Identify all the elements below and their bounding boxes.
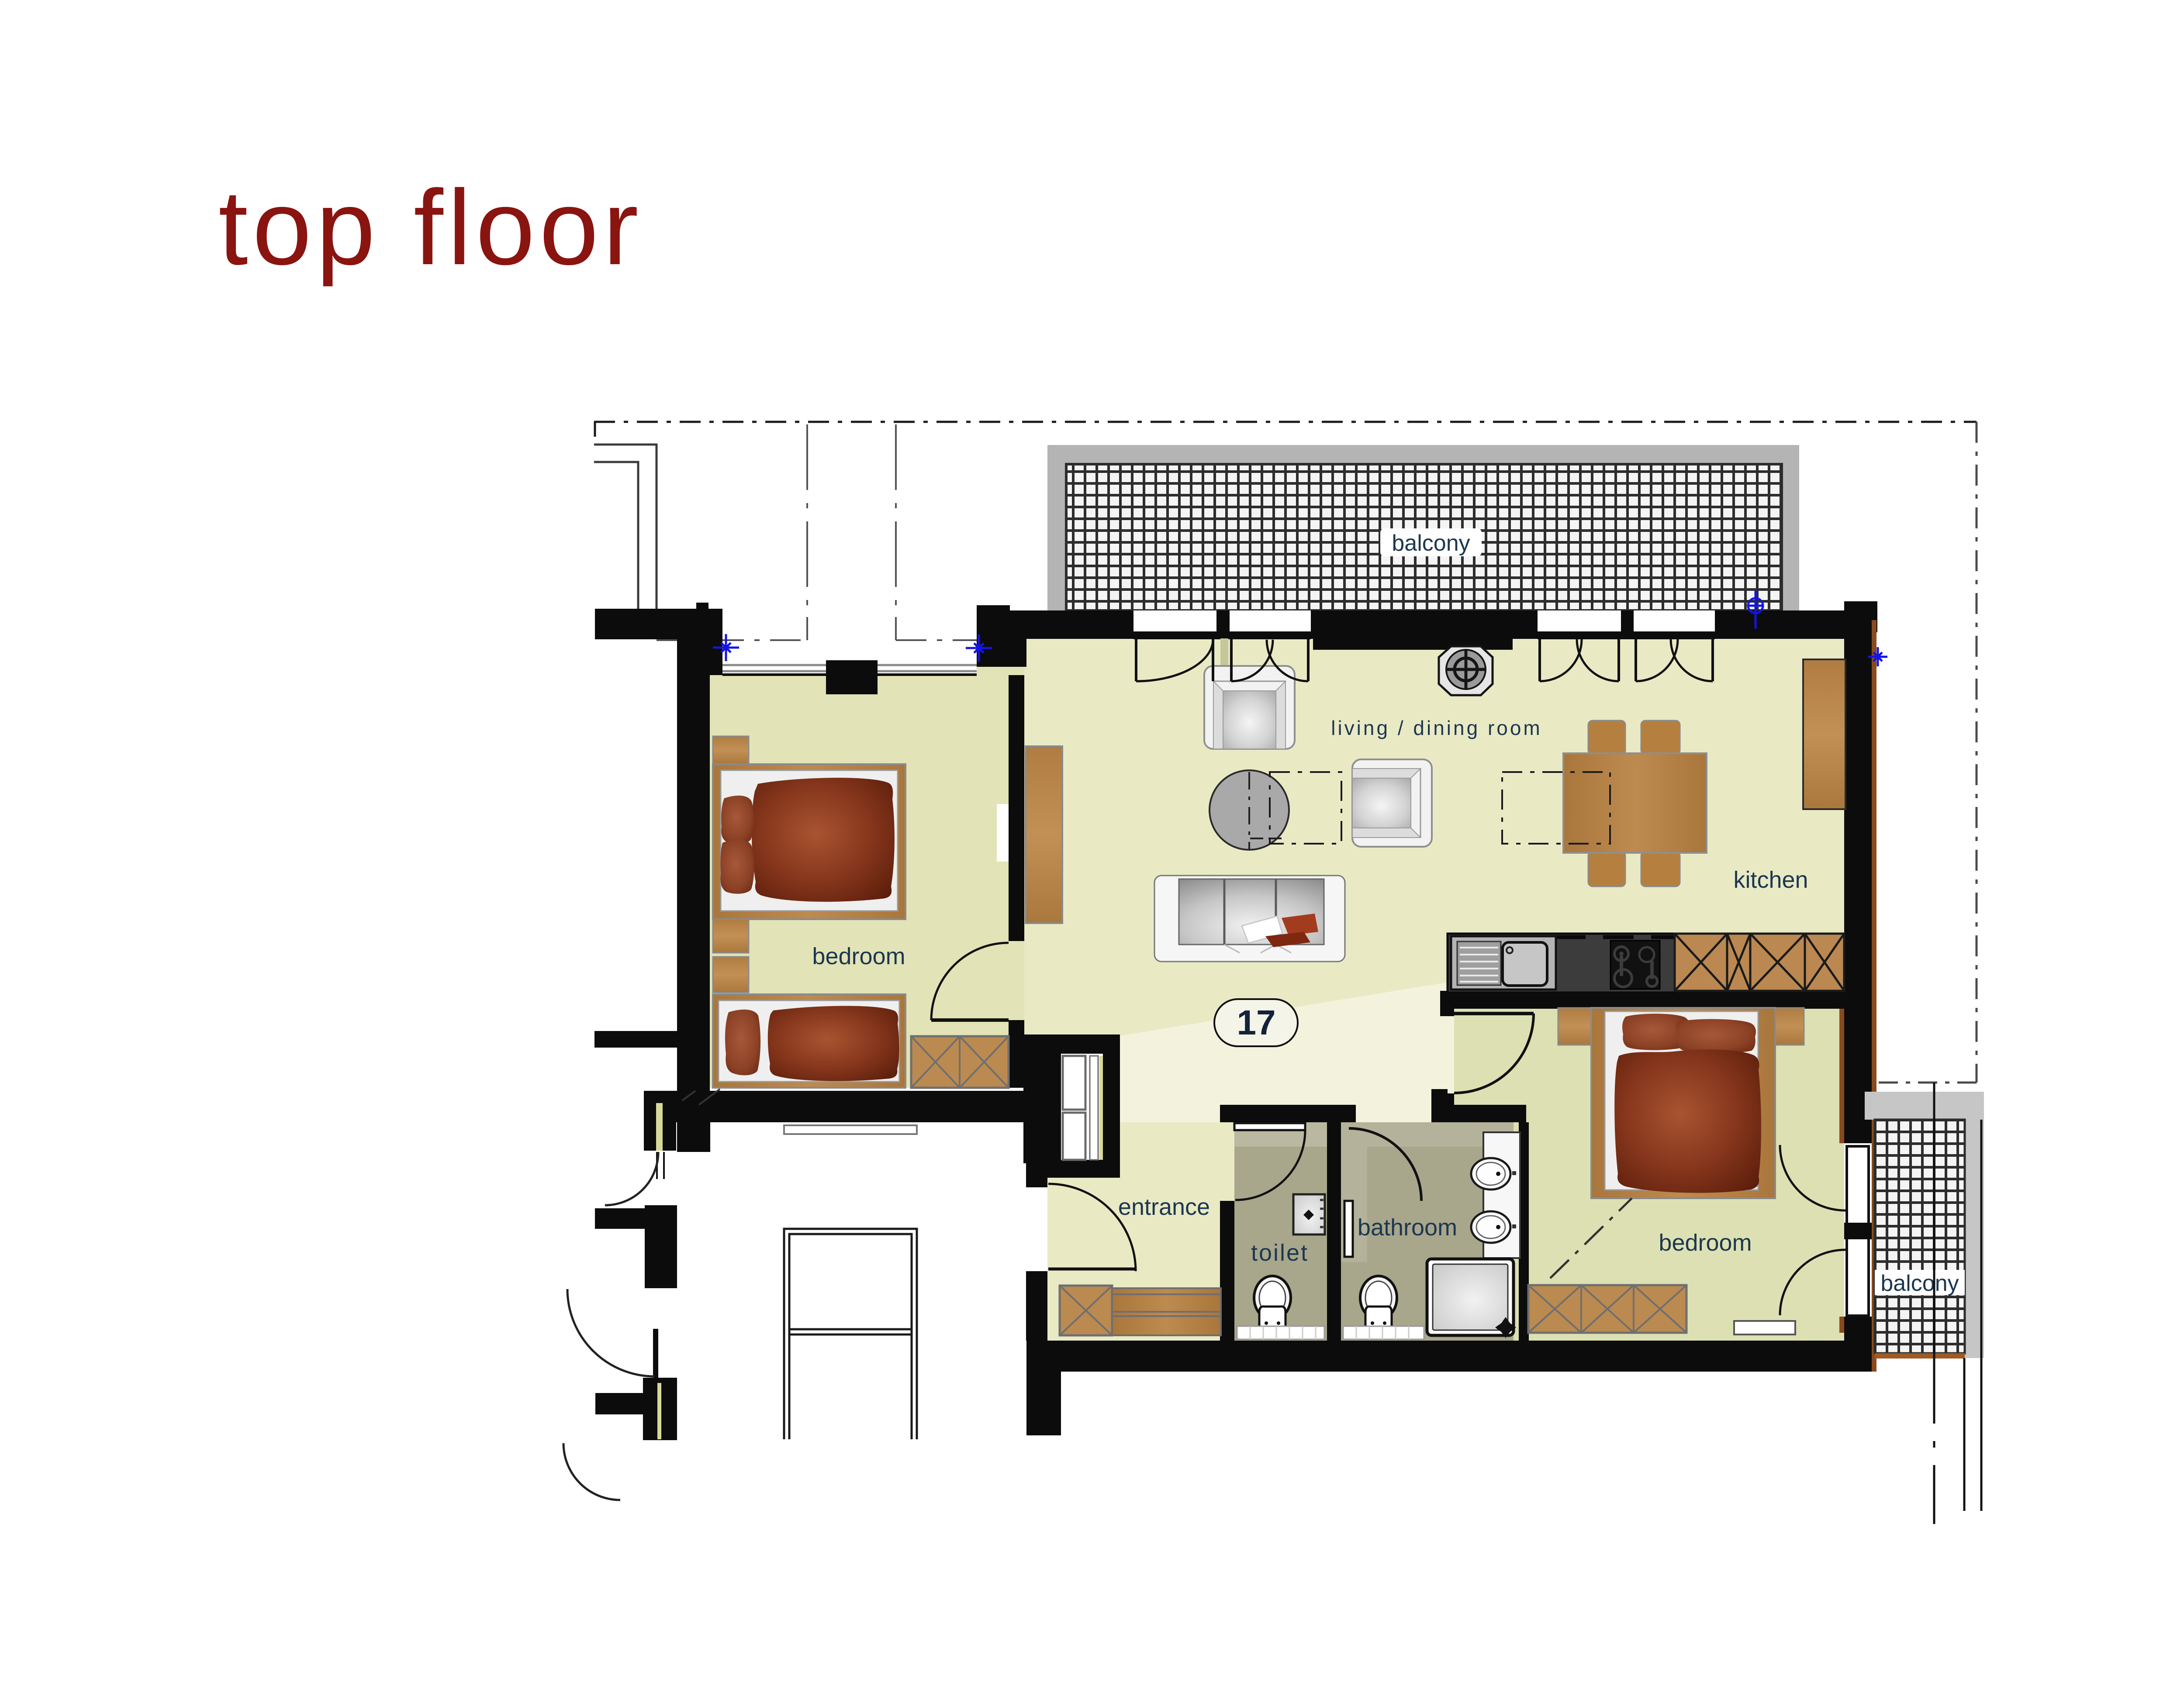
svg-text:bathroom: bathroom	[1358, 1214, 1457, 1241]
svg-text:entrance: entrance	[1118, 1194, 1210, 1220]
svg-text:top floor: top floor	[218, 168, 643, 287]
svg-text:kitchen: kitchen	[1733, 867, 1808, 893]
svg-text:bedroom: bedroom	[1659, 1230, 1752, 1256]
svg-text:living / dining room: living / dining room	[1331, 717, 1542, 739]
svg-text:toilet: toilet	[1251, 1240, 1309, 1266]
svg-text:bedroom: bedroom	[812, 943, 905, 969]
svg-text:17: 17	[1237, 1003, 1276, 1042]
svg-text:balcony: balcony	[1392, 531, 1470, 556]
svg-text:balcony: balcony	[1880, 1271, 1959, 1296]
